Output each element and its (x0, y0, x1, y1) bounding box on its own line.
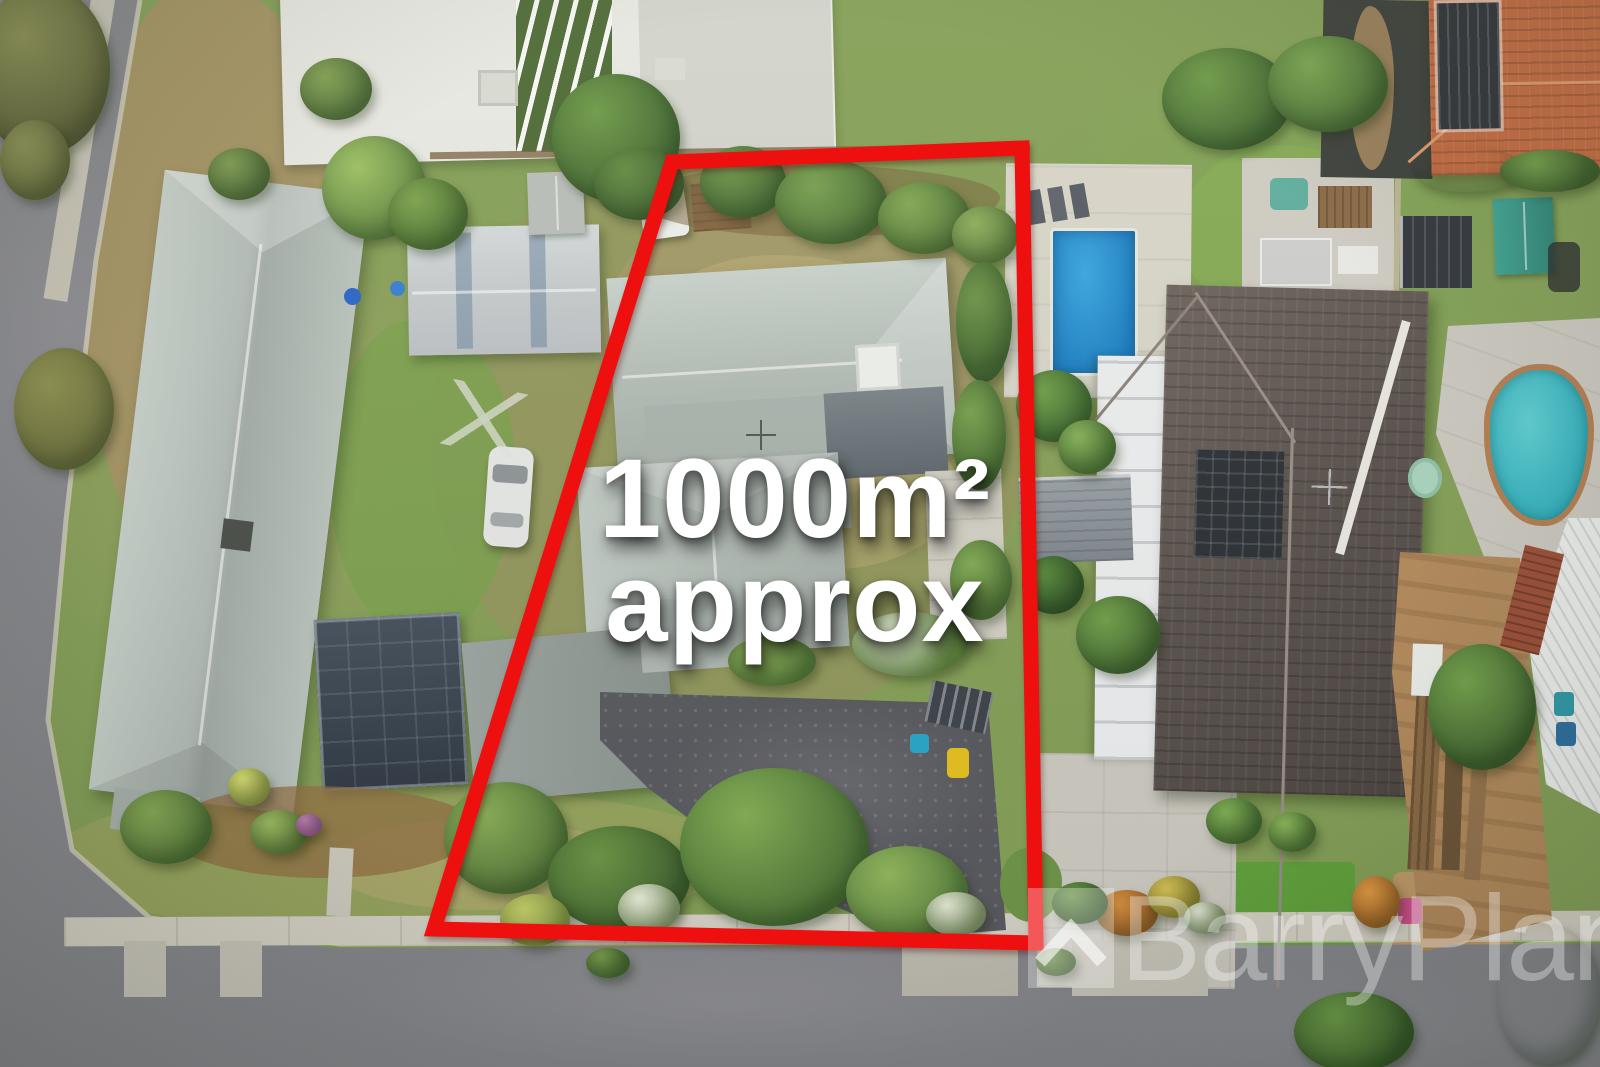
area-qualifier: approx (555, 551, 1035, 655)
aerial-photo: 1000m² approx BarryPlant (0, 0, 1600, 1067)
watermark-brand: BarryPlant (1120, 888, 1600, 988)
area-label: 1000m² approx (555, 447, 1035, 655)
barry-plant-logo-icon (1028, 888, 1114, 988)
watermark: BarryPlant (1028, 888, 1600, 988)
area-value: 1000m² (555, 447, 1035, 551)
